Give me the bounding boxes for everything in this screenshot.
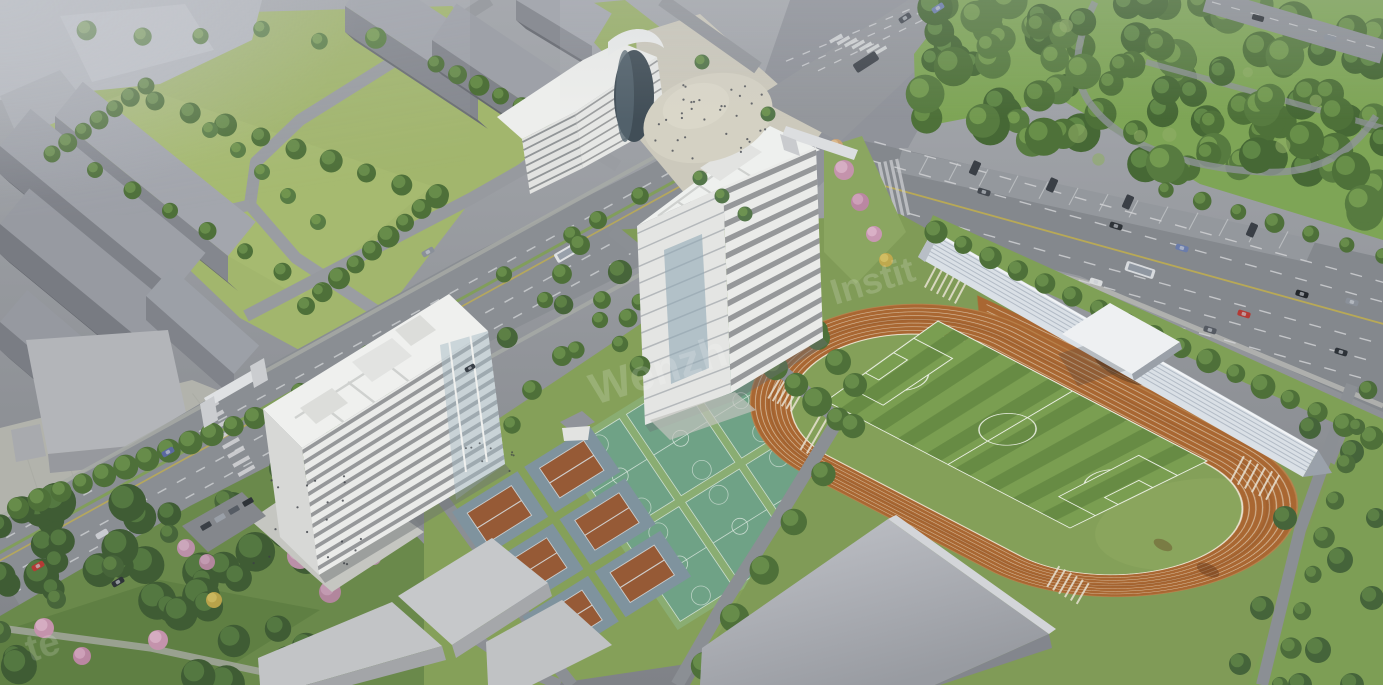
svg-text:te: te [20, 621, 65, 671]
